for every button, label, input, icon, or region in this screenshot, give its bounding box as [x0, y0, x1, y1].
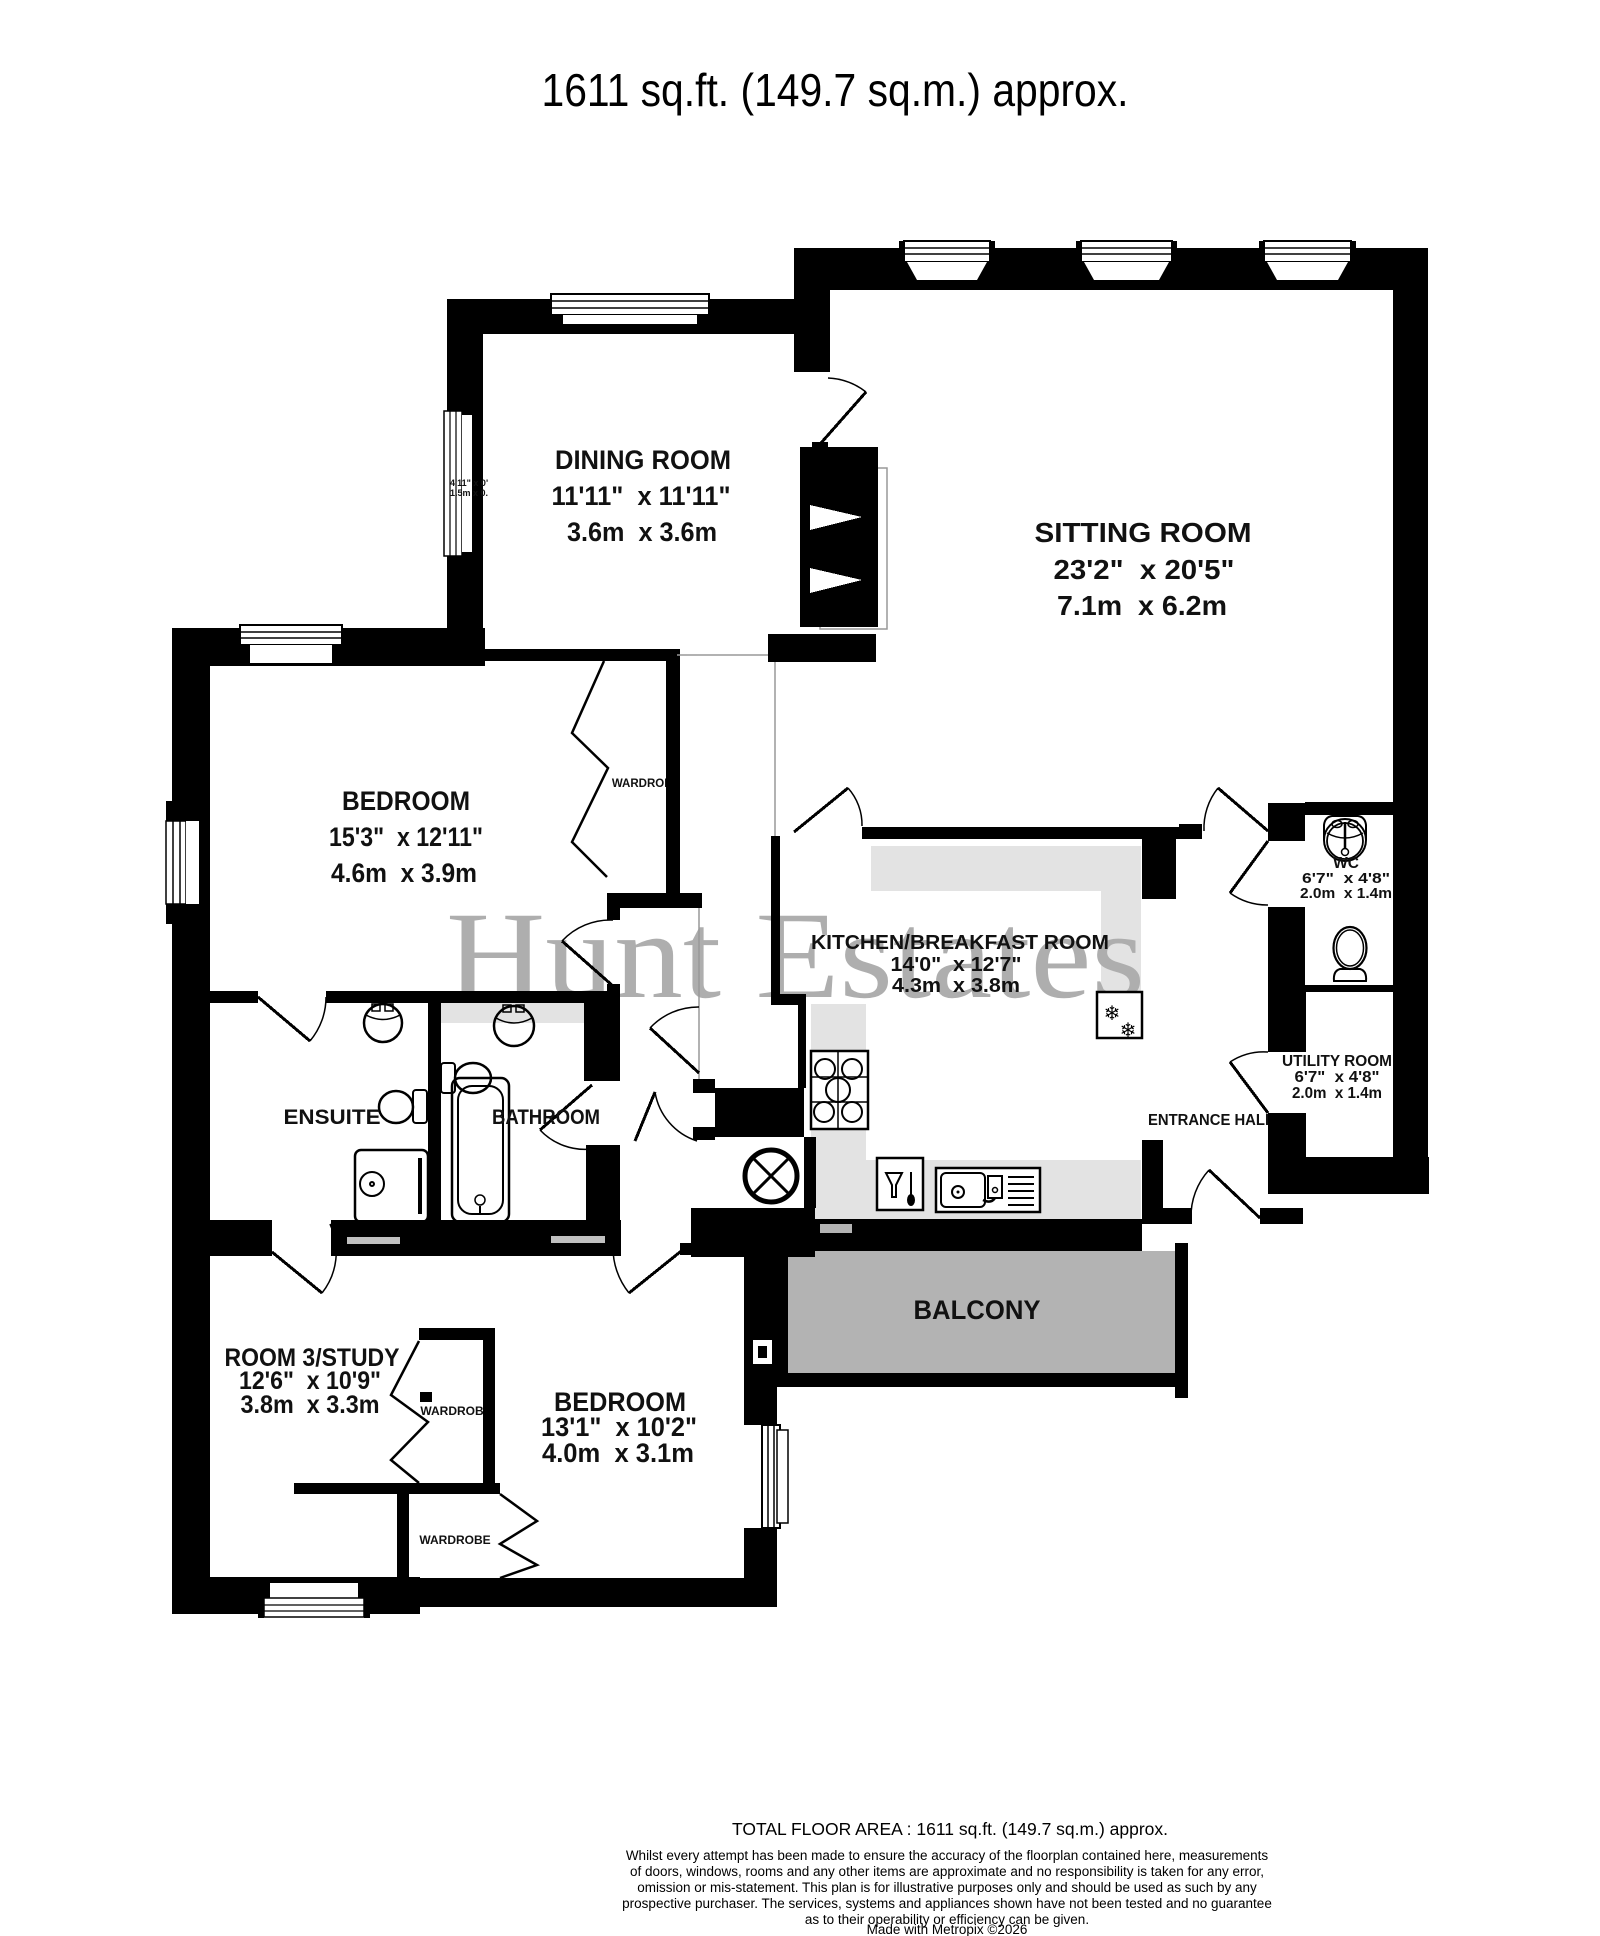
svg-text:KITCHEN/BREAKFAST ROOM: KITCHEN/BREAKFAST ROOM — [811, 931, 1109, 954]
svg-text:UTILITY ROOM: UTILITY ROOM — [1282, 1053, 1392, 1070]
svg-text:Whilst every attempt has been: Whilst every attempt has been made to en… — [626, 1848, 1269, 1863]
svg-text:ENSUITE: ENSUITE — [284, 1106, 381, 1129]
svg-text:4.6m x 3.9m: 4.6m x 3.9m — [331, 858, 477, 888]
svg-text:WARDROBE: WARDROBE — [419, 1533, 490, 1547]
svg-text:2.0m x 1.4m: 2.0m x 1.4m — [1292, 1085, 1382, 1102]
svg-text:BEDROOM: BEDROOM — [342, 786, 470, 816]
svg-text:BATHROOM: BATHROOM — [492, 1106, 600, 1129]
svg-text:1.5m x 0.: 1.5m x 0. — [450, 488, 488, 498]
svg-text:Made with Metropix ©2026: Made with Metropix ©2026 — [867, 1922, 1028, 1936]
svg-text:4'11" x 0': 4'11" x 0' — [450, 478, 488, 488]
svg-text:SITTING ROOM: SITTING ROOM — [1035, 517, 1252, 548]
svg-text:15'3" x 12'11": 15'3" x 12'11" — [329, 822, 483, 852]
svg-text:1611 sq.ft. (149.7 sq.m.) appr: 1611 sq.ft. (149.7 sq.m.) approx. — [542, 64, 1129, 116]
svg-text:omission or mis-statement. Thi: omission or mis-statement. This plan is … — [637, 1880, 1257, 1895]
svg-text:ENTRANCE HALL: ENTRANCE HALL — [1148, 1112, 1274, 1129]
svg-text:BALCONY: BALCONY — [914, 1295, 1041, 1325]
svg-text:6'7" x 4'8": 6'7" x 4'8" — [1295, 1069, 1380, 1086]
svg-text:14'0" x 12'7": 14'0" x 12'7" — [891, 953, 1022, 976]
svg-text:4.0m x 3.1m: 4.0m x 3.1m — [542, 1438, 694, 1468]
svg-text:TOTAL FLOOR AREA : 1611 sq.ft.: TOTAL FLOOR AREA : 1611 sq.ft. (149.7 sq… — [732, 1819, 1168, 1839]
svg-text:❄: ❄ — [1120, 1020, 1137, 1042]
svg-text:7.1m x 6.2m: 7.1m x 6.2m — [1057, 590, 1227, 621]
svg-text:3.6m x 3.6m: 3.6m x 3.6m — [567, 517, 717, 547]
svg-text:2.0m x 1.4m: 2.0m x 1.4m — [1300, 885, 1392, 902]
svg-text:4.3m x 3.8m: 4.3m x 3.8m — [892, 974, 1020, 997]
svg-text:❄: ❄ — [1104, 1003, 1121, 1025]
svg-text:prospective purchaser. The ser: prospective purchaser. The services, sys… — [622, 1896, 1272, 1911]
svg-text:3.8m x 3.3m: 3.8m x 3.3m — [241, 1391, 380, 1419]
svg-text:11'11" x 11'11": 11'11" x 11'11" — [552, 481, 731, 511]
svg-text:DINING ROOM: DINING ROOM — [555, 445, 731, 475]
svg-text:23'2" x 20'5": 23'2" x 20'5" — [1054, 554, 1235, 585]
svg-text:of doors, windows, rooms and a: of doors, windows, rooms and any other i… — [630, 1864, 1264, 1879]
svg-text:WARDROBE: WARDROBE — [420, 1404, 491, 1418]
